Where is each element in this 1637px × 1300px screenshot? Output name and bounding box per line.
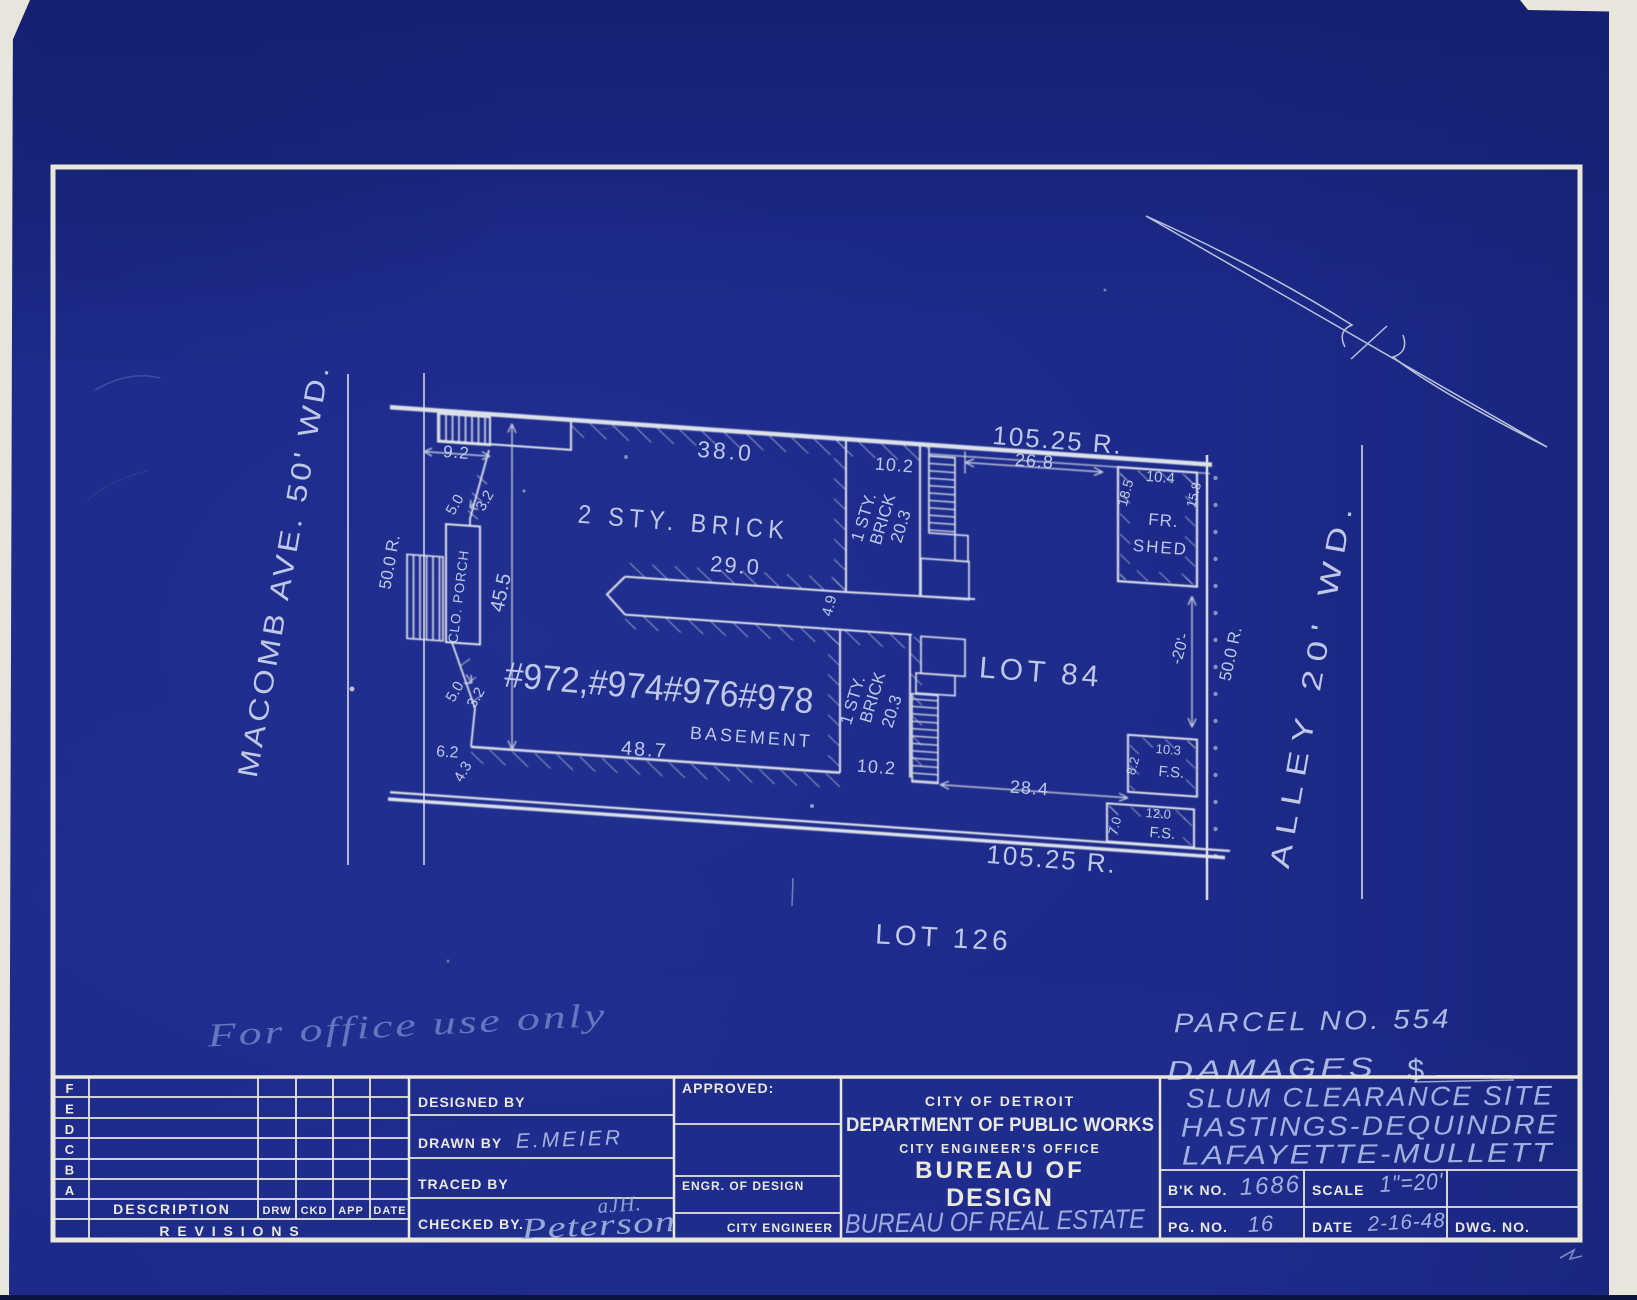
svg-text:DESCRIPTION: DESCRIPTION [113,1201,231,1217]
svg-text:F.S.: F.S. [1149,824,1176,843]
svg-text:E: E [65,1101,75,1116]
svg-text:CITY ENGINEER: CITY ENGINEER [727,1221,833,1235]
svg-text:CITY ENGINEER'S OFFICE: CITY ENGINEER'S OFFICE [899,1142,1101,1156]
svg-text:DESIGNED BY: DESIGNED BY [418,1094,525,1110]
svg-text:FR.: FR. [1148,510,1180,531]
svg-text:F: F [66,1081,75,1096]
svg-text:BUREAU OF REAL ESTATE: BUREAU OF REAL ESTATE [845,1204,1146,1239]
svg-text:1"=20': 1"=20' [1379,1168,1445,1197]
svg-text:38.0: 38.0 [696,436,755,466]
svg-text:DWG. NO.: DWG. NO. [1455,1219,1530,1235]
svg-text:B'K NO.: B'K NO. [1168,1182,1227,1198]
svg-text:CITY OF DETROIT: CITY OF DETROIT [925,1093,1075,1109]
svg-text:10.4: 10.4 [1145,468,1175,487]
svg-text:CHECKED BY.: CHECKED BY. [418,1216,524,1232]
svg-text:10.3: 10.3 [1155,741,1181,758]
svg-text:2-16-48: 2-16-48 [1366,1209,1446,1236]
svg-text:ENGR. OF DESIGN: ENGR. OF DESIGN [682,1179,804,1193]
svg-text:1686: 1686 [1239,1171,1302,1201]
svg-text:PG. NO.: PG. NO. [1168,1219,1228,1235]
svg-text:16: 16 [1247,1211,1275,1237]
svg-text:29.0: 29.0 [709,551,762,580]
svg-text:F.S.: F.S. [1158,763,1185,782]
svg-text:A: A [65,1183,75,1198]
svg-text:26.8: 26.8 [1014,450,1054,473]
svg-text:DEPARTMENT OF PUBLIC WORKS: DEPARTMENT OF PUBLIC WORKS [846,1115,1154,1136]
svg-text:DRAWN BY: DRAWN BY [418,1135,502,1151]
svg-text:BUREAU OF: BUREAU OF [915,1157,1085,1184]
svg-text:6.2: 6.2 [436,743,459,762]
svg-text:TRACED BY: TRACED BY [418,1176,509,1192]
svg-text:SCALE: SCALE [1312,1182,1364,1198]
svg-text:DATE: DATE [373,1205,406,1217]
svg-text:APP: APP [338,1205,364,1217]
svg-text:DAMAGES: DAMAGES [1167,1052,1377,1086]
svg-text:B: B [65,1163,75,1178]
svg-text:DRW: DRW [262,1205,291,1217]
svg-text:CKD: CKD [301,1205,328,1217]
svg-text:E.MEIER: E.MEIER [515,1126,623,1153]
svg-text:DATE: DATE [1312,1219,1353,1235]
svg-text:LAFAYETTE-MULLETT: LAFAYETTE-MULLETT [1182,1137,1555,1170]
svg-text:APPROVED:: APPROVED: [682,1080,774,1096]
svg-text:12.0: 12.0 [1145,805,1171,822]
svg-text:aJH.: aJH. [597,1191,643,1218]
svg-text:D: D [65,1122,75,1137]
svg-text:10.2: 10.2 [874,454,914,477]
svg-text:10.2: 10.2 [856,756,896,779]
svg-text:9.2: 9.2 [442,442,470,463]
svg-text:SLUM CLEARANCE SITE: SLUM CLEARANCE SITE [1186,1080,1554,1113]
svg-text:48.7: 48.7 [620,737,668,762]
svg-text:C: C [65,1142,75,1157]
svg-text:28.4: 28.4 [1009,777,1049,800]
svg-text:R E V I S I O N S: R E V I S I O N S [159,1223,300,1239]
svg-text:PARCEL NO. 554: PARCEL NO. 554 [1174,1004,1452,1039]
